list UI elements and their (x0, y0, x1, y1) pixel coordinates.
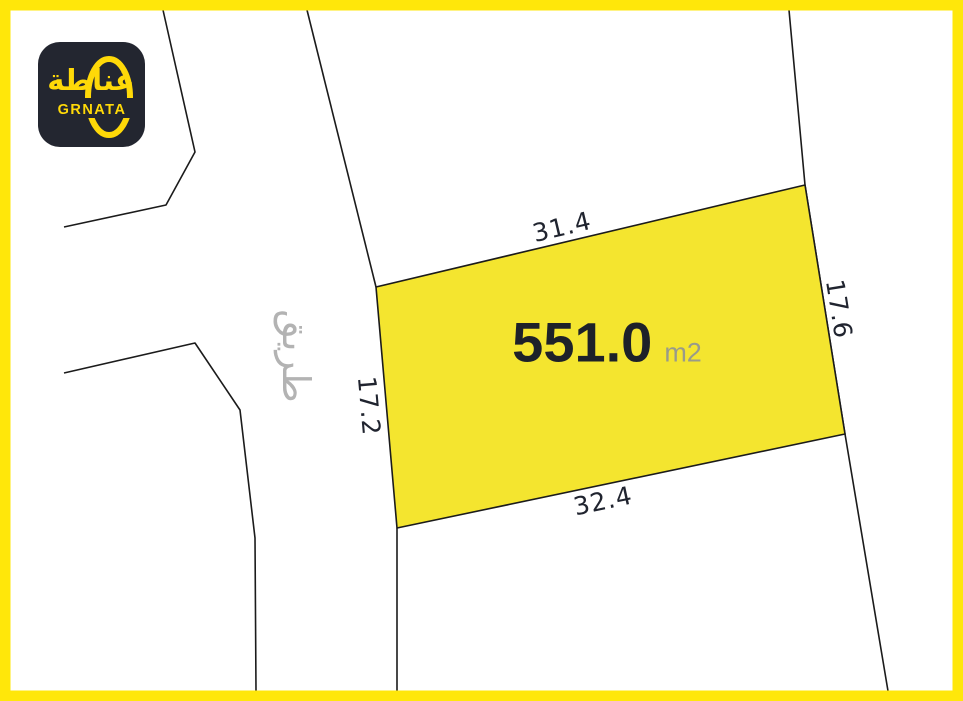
logo-arabic-text: غناطة (47, 63, 134, 97)
road-right-upper-boundary-line (307, 10, 376, 287)
plot-map-canvas: 31.4 17.6 32.4 17.2 طريق 551.0 m2 غناطة … (0, 0, 963, 701)
grnata-logo: غناطة GRNATA (38, 42, 145, 147)
logo-latin-text: GRNATA (58, 102, 127, 118)
road-left-lower-boundary-line (64, 343, 256, 691)
grnata-logo-icon: غناطة GRNATA (38, 42, 145, 147)
land-plot-polygon (376, 185, 845, 528)
